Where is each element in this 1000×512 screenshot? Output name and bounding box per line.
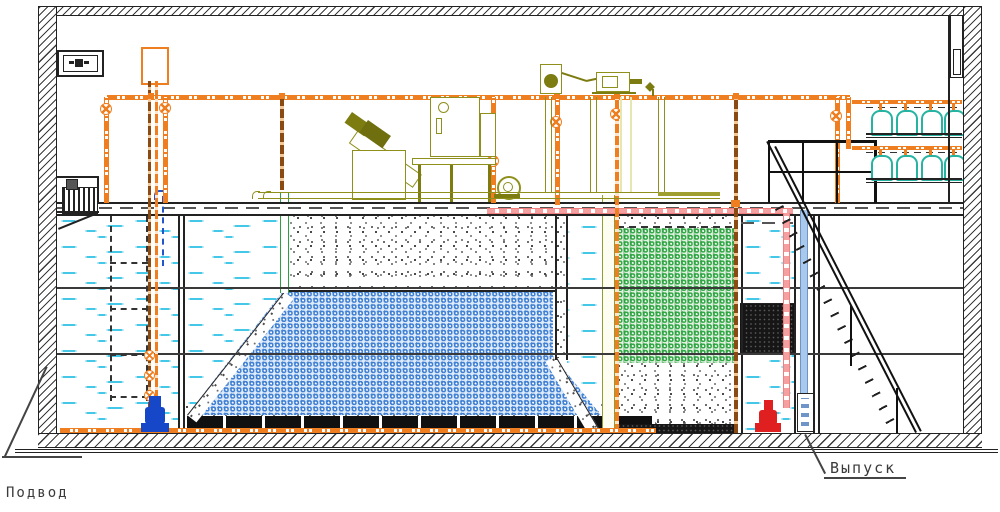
olive-stand-pipe (590, 97, 597, 193)
biofilter-bottom-gravel (617, 363, 737, 424)
launder-bar (658, 192, 720, 196)
outlet-label-underline (824, 477, 906, 479)
blower-pipe (630, 97, 632, 193)
floor-slab (38, 433, 982, 448)
pump-frame (57, 176, 99, 178)
manifold-riser (846, 97, 851, 149)
green-media-top-dashline (617, 226, 737, 228)
blue-guide-pipe (162, 196, 166, 266)
outlet-pump-red (755, 423, 781, 432)
olive-stand-pipe (658, 97, 665, 193)
blower-dial (544, 74, 558, 88)
inlet-label-line: Подвод (6, 487, 79, 500)
launder-hook (263, 191, 271, 199)
inlet-pump-blue (141, 423, 169, 432)
stair-post (850, 306, 852, 366)
blue-media-top-line (283, 290, 555, 292)
outlet-chamber-wall (818, 203, 820, 433)
stair-post (896, 388, 898, 433)
drop-pipe (148, 81, 151, 411)
railing-top-rail (768, 140, 876, 143)
biofilter-air-pipe (615, 97, 619, 433)
pipe-fitting (731, 200, 740, 207)
valve-icon (144, 370, 155, 381)
valve-icon (144, 350, 155, 361)
pump-inner-circle (503, 182, 513, 192)
fan-icon (75, 59, 83, 67)
guide-rail-rung (110, 396, 148, 398)
launder-hook (252, 191, 260, 199)
blower-cord (561, 72, 586, 82)
biofilter-right-wall (741, 203, 743, 433)
air-pump-shaft (630, 79, 642, 84)
inlet-pump-blue (145, 407, 165, 424)
blower-pipe (620, 97, 622, 193)
wall-left (38, 6, 57, 448)
construction-joint (57, 287, 963, 289)
wall-top (38, 6, 982, 16)
outlet-box-dash (801, 398, 809, 426)
pipe-fitting (733, 93, 739, 99)
valve-icon (100, 103, 112, 115)
olive-stand-pipe (545, 97, 552, 193)
gravel-top-layer (283, 215, 557, 293)
railing-post (802, 140, 804, 203)
screen-table (412, 158, 496, 165)
sludge-pipe-vertical (783, 213, 790, 408)
valve-icon (159, 102, 171, 114)
launder-channel (258, 192, 720, 199)
inlet-leader-underline (2, 456, 82, 458)
air-pump-base (592, 92, 636, 94)
pipe-fitting (148, 93, 154, 99)
dosing-tank (141, 47, 169, 85)
clarifier-air-pipe (734, 97, 738, 433)
treatment-plant-drawing: Подвод сточных вод на очистку Выпуск (0, 0, 1000, 512)
valve-icon (830, 110, 842, 122)
inlet-label: Подвод сточных вод на очистку (6, 461, 79, 512)
duct-niche-inner (953, 49, 961, 75)
recirculation-pipe (487, 208, 793, 214)
partition-wall (183, 215, 185, 432)
vessel-manifold (852, 100, 962, 104)
screen-cabinet-slot (436, 118, 442, 134)
drop-pipe (155, 81, 158, 411)
stair-stringer (774, 146, 921, 432)
biofilter-media-green (617, 228, 737, 363)
biofilter-left-wall (602, 195, 615, 433)
wall-pump-cap (66, 179, 78, 190)
deck-top-line (57, 202, 963, 204)
vent-stem (652, 89, 654, 96)
outlet-pipe (800, 210, 808, 395)
fan-icon (69, 61, 74, 64)
vessel-manifold (852, 146, 962, 150)
riser-pipe (280, 97, 284, 190)
ground-line (15, 449, 998, 453)
partition-wall (178, 215, 180, 432)
guide-rail-rung (110, 308, 148, 310)
construction-joint (57, 353, 963, 355)
screen-cabinet-dial (438, 102, 449, 113)
screen-side-panel (480, 113, 496, 157)
wall-pump (62, 187, 98, 214)
air-pump-inner (602, 76, 618, 88)
pipe-fitting (279, 93, 285, 99)
railing-post (836, 140, 838, 203)
fan-icon (84, 61, 89, 64)
riser-pipe (555, 97, 560, 205)
outlet-label: Выпуск (830, 462, 896, 475)
guide-rail-rung (110, 354, 148, 356)
deck-bottom-line (57, 214, 963, 216)
guide-rail-rung (110, 262, 148, 264)
wall-right (963, 6, 982, 448)
